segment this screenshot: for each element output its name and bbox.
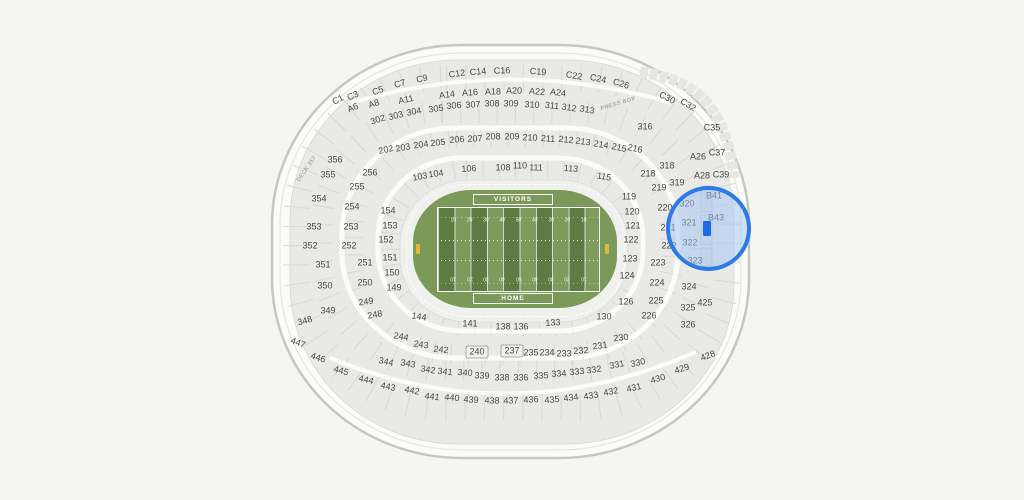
section-349[interactable]: 349 (320, 307, 335, 316)
section-343[interactable]: 343 (400, 358, 416, 369)
section-223[interactable]: 223 (650, 259, 665, 268)
section-206[interactable]: 206 (449, 135, 465, 145)
section-C26[interactable]: C26 (612, 77, 630, 90)
section-C3[interactable]: C3 (346, 90, 360, 103)
section-356[interactable]: 356 (327, 156, 342, 165)
section-210[interactable]: 210 (522, 133, 537, 143)
section-330[interactable]: 330 (630, 357, 647, 369)
section-256[interactable]: 256 (362, 169, 377, 178)
section-355[interactable]: 355 (320, 171, 335, 180)
section-C32[interactable]: C32 (679, 97, 698, 113)
section-331[interactable]: 331 (609, 359, 625, 371)
section-153[interactable]: 153 (382, 222, 397, 231)
section-344[interactable]: 344 (378, 356, 395, 368)
section-108[interactable]: 108 (495, 164, 510, 173)
section-313[interactable]: 313 (579, 104, 595, 115)
section-307[interactable]: 307 (465, 100, 480, 110)
section-353[interactable]: 353 (306, 223, 321, 232)
section-433[interactable]: 433 (583, 390, 599, 401)
section-C39[interactable]: C39 (713, 171, 730, 180)
section-123[interactable]: 123 (622, 255, 637, 264)
section-308[interactable]: 308 (484, 100, 499, 109)
section-311[interactable]: 311 (544, 101, 559, 111)
section-338[interactable]: 338 (494, 374, 509, 383)
section-C22[interactable]: C22 (565, 70, 583, 81)
section-445[interactable]: 445 (333, 365, 350, 378)
section-119[interactable]: 119 (622, 193, 636, 202)
section-C7[interactable]: C7 (393, 78, 407, 90)
section-442[interactable]: 442 (404, 385, 420, 396)
section-234[interactable]: 234 (539, 349, 554, 358)
section-212[interactable]: 212 (558, 135, 574, 146)
section-354[interactable]: 354 (311, 195, 326, 204)
section-438[interactable]: 438 (484, 396, 499, 405)
section-233[interactable]: 233 (556, 350, 571, 359)
section-211[interactable]: 211 (541, 134, 556, 144)
section-A14[interactable]: A14 (439, 90, 456, 101)
section-218[interactable]: 218 (640, 170, 655, 179)
section-446[interactable]: 446 (309, 351, 326, 364)
section-350[interactable]: 350 (317, 282, 332, 291)
section-309[interactable]: 309 (503, 100, 518, 109)
section-C16[interactable]: C16 (494, 66, 511, 76)
section-325[interactable]: 325 (680, 304, 695, 313)
section-244[interactable]: 244 (393, 331, 409, 342)
section-A28[interactable]: A28 (694, 172, 710, 181)
section-133[interactable]: 133 (545, 318, 561, 328)
section-C14[interactable]: C14 (469, 67, 486, 77)
section-240[interactable]: 240 (465, 346, 488, 359)
section-202[interactable]: 202 (378, 144, 395, 156)
section-302[interactable]: 302 (369, 113, 386, 126)
section-C1[interactable]: C1 (331, 93, 345, 106)
section-434[interactable]: 434 (563, 393, 579, 404)
section-334[interactable]: 334 (551, 369, 567, 379)
section-122[interactable]: 122 (623, 236, 638, 245)
section-235[interactable]: 235 (523, 349, 538, 358)
section-444[interactable]: 444 (358, 374, 375, 386)
section-251[interactable]: 251 (357, 259, 372, 268)
section-216[interactable]: 216 (627, 143, 644, 155)
section-A22[interactable]: A22 (529, 87, 546, 97)
section-432[interactable]: 432 (603, 386, 619, 398)
section-304[interactable]: 304 (406, 106, 422, 118)
section-203[interactable]: 203 (395, 142, 411, 153)
section-152[interactable]: 152 (378, 236, 393, 245)
section-106[interactable]: 106 (461, 164, 477, 174)
section-230[interactable]: 230 (613, 333, 629, 344)
section-332[interactable]: 332 (586, 364, 602, 375)
section-248[interactable]: 248 (367, 309, 383, 320)
section-214[interactable]: 214 (593, 139, 609, 150)
section-440[interactable]: 440 (444, 393, 460, 403)
section-319[interactable]: 319 (669, 179, 684, 188)
section-316[interactable]: 316 (637, 123, 652, 132)
section-437[interactable]: 437 (503, 396, 518, 405)
section-310[interactable]: 310 (524, 100, 539, 110)
section-A8[interactable]: A8 (367, 98, 380, 110)
section-C37[interactable]: C37 (709, 149, 726, 158)
section-141[interactable]: 141 (462, 320, 477, 329)
section-C19[interactable]: C19 (529, 67, 546, 77)
section-312[interactable]: 312 (561, 102, 577, 113)
section-A24[interactable]: A24 (550, 88, 567, 99)
section-441[interactable]: 441 (424, 392, 440, 403)
section-242[interactable]: 242 (433, 345, 449, 356)
section-326[interactable]: 326 (680, 321, 695, 330)
section-A20[interactable]: A20 (506, 86, 522, 95)
section-303[interactable]: 303 (388, 110, 405, 122)
section-341[interactable]: 341 (437, 367, 453, 378)
section-150[interactable]: 150 (384, 269, 399, 278)
section-333[interactable]: 333 (569, 367, 585, 378)
section-121[interactable]: 121 (625, 222, 640, 231)
section-429[interactable]: 429 (673, 362, 690, 375)
section-130[interactable]: 130 (596, 313, 611, 322)
section-120[interactable]: 120 (624, 208, 639, 217)
section-224[interactable]: 224 (649, 279, 664, 288)
section-C12[interactable]: C12 (448, 68, 466, 79)
section-113[interactable]: 113 (563, 164, 578, 174)
section-labels-layer: C1C3C5C7C9C12C14C16C19C22C24C26C30C32C35… (0, 0, 1024, 500)
section-136[interactable]: 136 (513, 323, 528, 332)
section-430[interactable]: 430 (650, 373, 667, 386)
section-208[interactable]: 208 (485, 133, 500, 142)
section-138[interactable]: 138 (495, 323, 510, 332)
section-207[interactable]: 207 (467, 134, 482, 144)
section-342[interactable]: 342 (420, 364, 436, 375)
section-A11[interactable]: A11 (398, 94, 415, 106)
section-115[interactable]: 115 (596, 171, 612, 182)
section-C9[interactable]: C9 (415, 73, 428, 84)
section-104[interactable]: 104 (428, 168, 444, 179)
section-443[interactable]: 443 (380, 381, 397, 393)
section-305[interactable]: 305 (428, 103, 444, 114)
section-335[interactable]: 335 (533, 371, 548, 381)
section-340[interactable]: 340 (457, 368, 473, 378)
section-144[interactable]: 144 (411, 311, 427, 322)
section-425[interactable]: 425 (697, 299, 712, 308)
section-124[interactable]: 124 (619, 272, 634, 281)
section-151[interactable]: 151 (382, 254, 397, 263)
section-225[interactable]: 225 (648, 297, 663, 306)
section-318[interactable]: 318 (659, 162, 674, 171)
section-226[interactable]: 226 (641, 312, 656, 321)
section-215[interactable]: 215 (611, 142, 628, 154)
section-154[interactable]: 154 (380, 207, 395, 216)
section-252[interactable]: 252 (341, 242, 356, 251)
section-149[interactable]: 149 (386, 284, 401, 293)
section-435[interactable]: 435 (544, 395, 560, 405)
section-231[interactable]: 231 (592, 340, 608, 351)
section-110[interactable]: 110 (513, 162, 527, 171)
section-428[interactable]: 428 (699, 349, 716, 363)
section-C5[interactable]: C5 (371, 85, 385, 97)
section-255[interactable]: 255 (349, 183, 364, 192)
section-351[interactable]: 351 (315, 261, 330, 270)
section-352[interactable]: 352 (302, 242, 317, 251)
section-250[interactable]: 250 (357, 279, 372, 288)
section-C35[interactable]: C35 (704, 124, 721, 133)
section-C30[interactable]: C30 (658, 90, 677, 106)
section-A16[interactable]: A16 (462, 88, 479, 98)
section-249[interactable]: 249 (358, 296, 374, 307)
section-209[interactable]: 209 (504, 133, 519, 142)
section-243[interactable]: 243 (413, 339, 429, 350)
section-447[interactable]: 447 (289, 336, 306, 350)
section-339[interactable]: 339 (474, 371, 489, 381)
section-219[interactable]: 219 (651, 184, 666, 193)
section-439[interactable]: 439 (463, 395, 478, 405)
section-436[interactable]: 436 (523, 395, 538, 405)
section-237[interactable]: 237 (500, 345, 523, 358)
section-C24[interactable]: C24 (589, 73, 607, 85)
section-348[interactable]: 348 (297, 315, 314, 328)
section-213[interactable]: 213 (575, 136, 591, 147)
section-111[interactable]: 111 (529, 163, 543, 172)
section-336[interactable]: 336 (513, 374, 528, 383)
section-A26[interactable]: A26 (690, 153, 706, 162)
section-204[interactable]: 204 (413, 139, 429, 150)
section-254[interactable]: 254 (344, 203, 359, 212)
section-253[interactable]: 253 (343, 223, 358, 232)
section-126[interactable]: 126 (618, 298, 633, 307)
section-232[interactable]: 232 (573, 346, 589, 356)
stadium-seat-map: VISITORS HOME 10102020303040405050404030… (0, 0, 1024, 500)
selected-section-marker[interactable] (703, 221, 711, 236)
section-A6[interactable]: A6 (346, 102, 360, 114)
section-205[interactable]: 205 (430, 138, 446, 149)
section-306[interactable]: 306 (446, 101, 462, 111)
section-A18[interactable]: A18 (485, 87, 501, 96)
section-431[interactable]: 431 (626, 382, 643, 394)
section-103[interactable]: 103 (412, 171, 428, 182)
section-324[interactable]: 324 (681, 283, 696, 292)
